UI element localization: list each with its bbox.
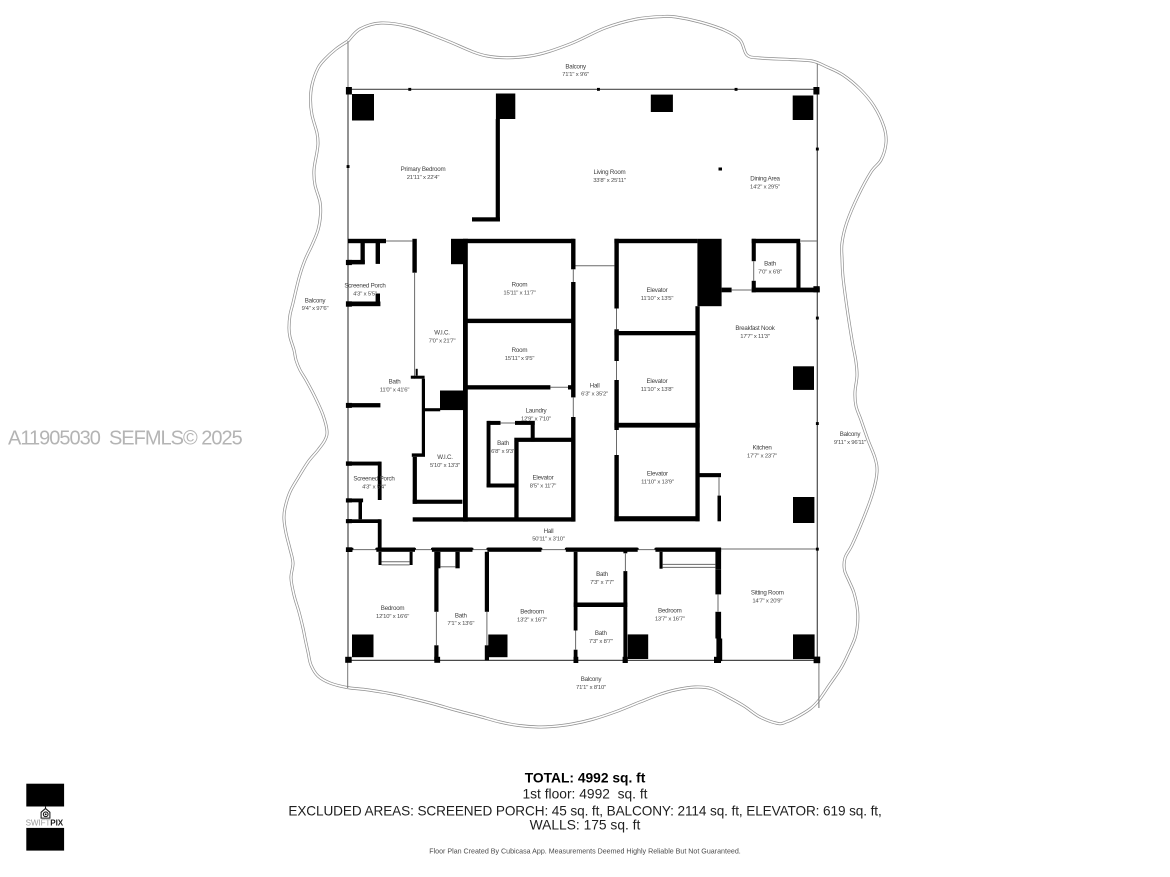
svg-text:SWIFTPIX: SWIFTPIX	[26, 819, 64, 828]
svg-text:Balcony: Balcony	[840, 431, 862, 438]
svg-text:Bedroom: Bedroom	[381, 605, 405, 612]
svg-text:W.I.C.: W.I.C.	[434, 330, 450, 337]
svg-text:7'1" x 13'6": 7'1" x 13'6"	[447, 621, 474, 627]
svg-text:Bedroom: Bedroom	[658, 608, 682, 615]
svg-text:12'10" x 16'6": 12'10" x 16'6"	[376, 614, 409, 620]
svg-text:11'10" x 13'8": 11'10" x 13'8"	[641, 387, 674, 393]
svg-text:A11905030 SEFMLS© 2025: A11905030 SEFMLS© 2025	[8, 428, 243, 450]
svg-text:Sitting Room: Sitting Room	[751, 590, 784, 597]
svg-text:12'9" x 7'10": 12'9" x 7'10"	[521, 417, 551, 423]
svg-text:Laundry: Laundry	[526, 408, 548, 415]
svg-text:WALLS: 175 sq. ft: WALLS: 175 sq. ft	[530, 818, 641, 833]
svg-text:11'10" x 13'9": 11'10" x 13'9"	[641, 480, 674, 486]
svg-text:Bath: Bath	[595, 630, 608, 637]
svg-text:Elevator: Elevator	[647, 287, 668, 294]
svg-text:Dining Area: Dining Area	[750, 176, 780, 183]
svg-text:8'5" x 11'7": 8'5" x 11'7"	[530, 484, 557, 490]
svg-text:7'0" x 6'8": 7'0" x 6'8"	[758, 270, 782, 276]
svg-text:71'1" x 9'6": 71'1" x 9'6"	[562, 72, 589, 78]
svg-text:4'3" x 5'4": 4'3" x 5'4"	[362, 485, 386, 491]
svg-text:Balcony: Balcony	[305, 297, 327, 304]
svg-text:71'1" x 8'10": 71'1" x 8'10"	[576, 685, 606, 691]
svg-text:15'11" x 11'7": 15'11" x 11'7"	[503, 291, 535, 297]
svg-text:Bath: Bath	[455, 612, 468, 619]
svg-text:11'10" x 13'5": 11'10" x 13'5"	[641, 296, 674, 302]
svg-text:EXCLUDED AREAS: SCREENED PORCH: EXCLUDED AREAS: SCREENED PORCH: 45 sq. f…	[288, 804, 881, 819]
svg-text:Bedroom: Bedroom	[520, 609, 544, 616]
svg-text:Floor Plan Created By Cubicasa: Floor Plan Created By Cubicasa App. Meas…	[429, 848, 741, 856]
svg-text:9'11" x 96'11": 9'11" x 96'11"	[834, 440, 866, 446]
svg-text:50'11" x 3'10": 50'11" x 3'10"	[532, 537, 565, 543]
svg-text:7'0" x 21'7": 7'0" x 21'7"	[429, 339, 456, 345]
svg-text:Balcony: Balcony	[565, 63, 587, 70]
svg-text:17'7" x 23'7": 17'7" x 23'7"	[747, 454, 777, 460]
svg-text:4'3" x 5'5": 4'3" x 5'5"	[353, 292, 377, 298]
svg-text:Living Room: Living Room	[594, 169, 626, 176]
svg-text:Balcony: Balcony	[581, 676, 603, 683]
svg-text:14'7" x 20'9": 14'7" x 20'9"	[752, 599, 782, 605]
svg-text:W.I.C.: W.I.C.	[437, 454, 453, 461]
svg-text:1st floor: 4992 sq. ft: 1st floor: 4992 sq. ft	[522, 787, 647, 802]
svg-text:7'3" x 7'7": 7'3" x 7'7"	[590, 580, 614, 586]
svg-text:17'7" x 11'3": 17'7" x 11'3"	[740, 334, 770, 340]
svg-text:Bath: Bath	[497, 440, 510, 447]
svg-text:7'3" x 8'7": 7'3" x 8'7"	[589, 639, 613, 645]
svg-text:Bath: Bath	[764, 261, 777, 268]
svg-text:14'2" x 29'5": 14'2" x 29'5"	[750, 185, 780, 191]
svg-text:Kitchen: Kitchen	[752, 445, 772, 452]
svg-text:11'0" x 41'6": 11'0" x 41'6"	[380, 388, 410, 394]
svg-text:Primary Bedroom: Primary Bedroom	[401, 166, 446, 173]
svg-text:6'3" x 35'2": 6'3" x 35'2"	[581, 392, 608, 398]
svg-text:Hall: Hall	[544, 528, 554, 535]
svg-text:21'11" x 22'4": 21'11" x 22'4"	[407, 175, 440, 181]
svg-text:13'7" x 16'7": 13'7" x 16'7"	[655, 617, 685, 623]
svg-text:TOTAL: 4992 sq. ft: TOTAL: 4992 sq. ft	[525, 771, 646, 786]
svg-text:Room: Room	[512, 282, 528, 289]
svg-text:Screened Porch: Screened Porch	[344, 283, 386, 290]
svg-text:9'4" x 97'6": 9'4" x 97'6"	[302, 306, 329, 312]
svg-text:Screened Porch: Screened Porch	[353, 476, 395, 483]
svg-text:Bath: Bath	[596, 571, 609, 578]
svg-text:Elevator: Elevator	[533, 475, 554, 482]
svg-text:Room: Room	[512, 347, 528, 354]
svg-text:6'8" x 9'3": 6'8" x 9'3"	[491, 449, 515, 455]
svg-text:Breakfast Nook: Breakfast Nook	[735, 325, 775, 332]
svg-text:15'11" x 9'5": 15'11" x 9'5"	[505, 356, 535, 362]
svg-text:Elevator: Elevator	[647, 471, 668, 478]
svg-text:Elevator: Elevator	[647, 378, 668, 385]
svg-text:33'8" x 25'11": 33'8" x 25'11"	[593, 178, 626, 184]
svg-text:Hall: Hall	[590, 383, 600, 390]
svg-text:Bath: Bath	[389, 379, 402, 386]
svg-text:13'2" x 16'7": 13'2" x 16'7"	[517, 618, 547, 624]
svg-text:5'10" x 13'3": 5'10" x 13'3"	[430, 463, 460, 469]
